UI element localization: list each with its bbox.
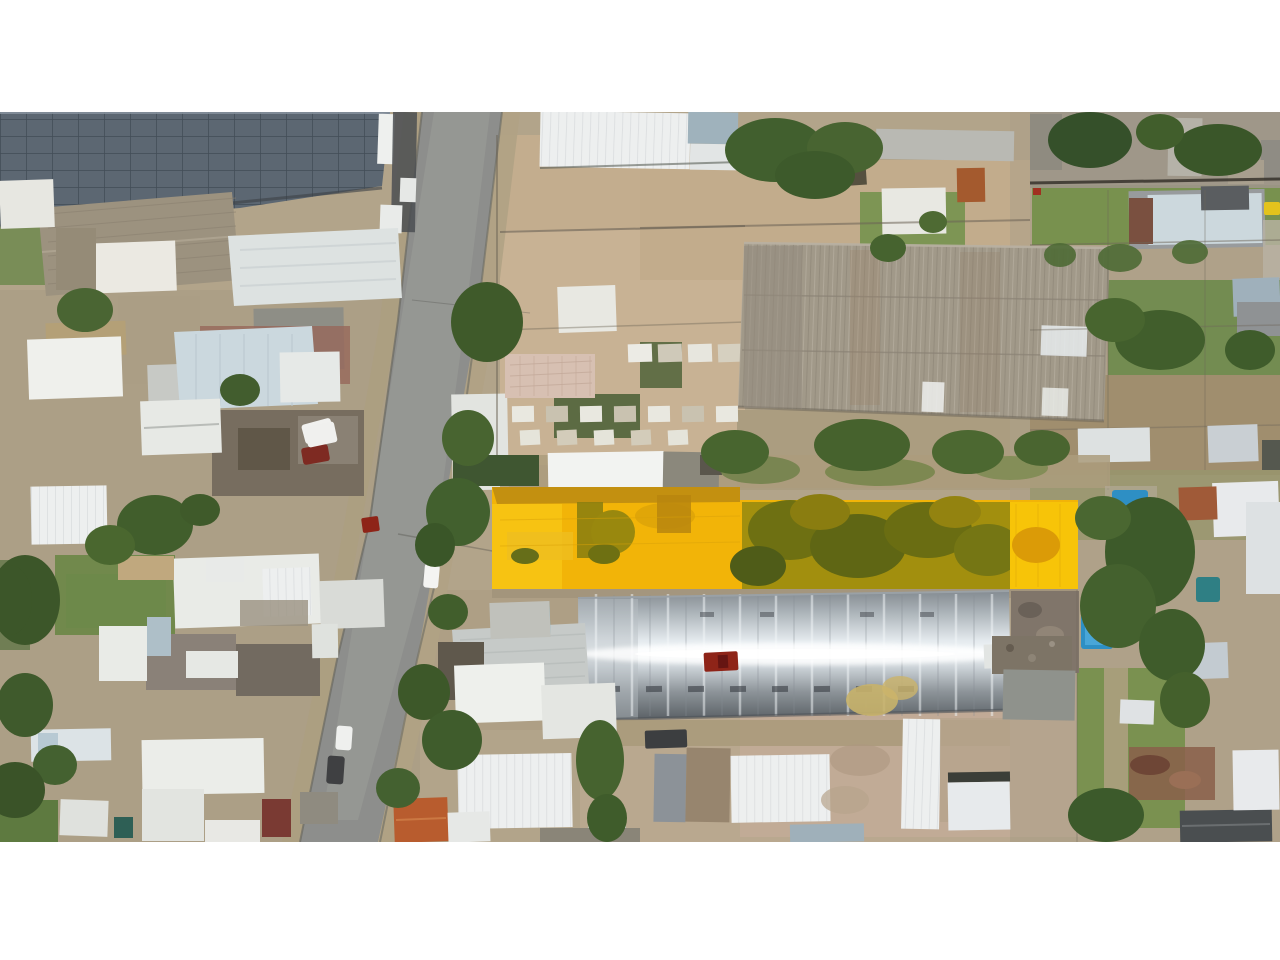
- photo-shape: [1232, 750, 1279, 811]
- photo-shape: [240, 600, 308, 626]
- crate: [682, 406, 704, 422]
- maroon-building: [262, 799, 291, 837]
- aerial-photo: [0, 0, 1280, 960]
- photo-shape: [830, 744, 890, 776]
- photo-shape: [1129, 198, 1153, 244]
- skylight: [921, 382, 944, 413]
- pool-teal: [1196, 577, 1220, 602]
- photo-shape: [300, 792, 338, 824]
- crate: [628, 344, 653, 363]
- photo-shape: [400, 178, 417, 203]
- tree: [415, 523, 455, 567]
- tree: [1174, 124, 1262, 176]
- photo-shape: [1262, 440, 1280, 470]
- photo-shape: [56, 228, 96, 290]
- photo-shape: [27, 336, 123, 399]
- tree: [1048, 112, 1132, 168]
- roof-vent: [730, 686, 746, 692]
- skylight: [1042, 388, 1069, 417]
- photo-shape: [238, 428, 290, 470]
- crate: [668, 429, 689, 445]
- photo-shape: [1003, 669, 1076, 720]
- photo-shape: [1012, 527, 1060, 563]
- tree: [576, 720, 624, 800]
- roof-vent: [814, 686, 830, 692]
- bush: [1044, 243, 1076, 267]
- photo-shape: [821, 786, 869, 814]
- teal-shed: [114, 817, 133, 838]
- roof-vent: [860, 612, 874, 617]
- photo-shape: [1246, 502, 1280, 594]
- photo-shape: [744, 246, 802, 408]
- photo-shape: [447, 811, 490, 842]
- tree: [220, 374, 260, 406]
- photo-shape: [206, 558, 244, 582]
- photo-shape: [653, 754, 686, 823]
- crate: [648, 406, 670, 422]
- tree: [1160, 672, 1210, 728]
- tree: [376, 768, 420, 808]
- photo-shape: [377, 114, 395, 165]
- crate: [658, 344, 683, 363]
- photo-shape: [280, 351, 341, 402]
- bush: [1098, 244, 1142, 272]
- dark-van: [645, 729, 688, 748]
- tree: [57, 288, 113, 332]
- tree: [587, 794, 627, 842]
- crate: [512, 406, 534, 422]
- roof-vent: [700, 612, 714, 617]
- photo-shape: [312, 624, 339, 658]
- tree: [1014, 430, 1070, 466]
- roof-vent: [772, 686, 788, 692]
- tree: [1075, 496, 1131, 540]
- crate: [614, 406, 636, 422]
- photo-shape: [948, 781, 1011, 830]
- photo-shape: [511, 548, 539, 564]
- photo-shape: [1263, 220, 1280, 278]
- tree: [451, 282, 523, 362]
- tree: [701, 430, 769, 474]
- rust-roof: [1178, 486, 1217, 520]
- photo-shape: [901, 719, 941, 830]
- photo-shape: [929, 496, 981, 528]
- white-warehouse-top: [540, 111, 691, 170]
- photo-shape: [1130, 755, 1170, 775]
- roof-vent: [646, 686, 662, 692]
- photo-shape: [186, 651, 238, 678]
- crate: [631, 429, 652, 445]
- tree: [932, 430, 1004, 474]
- photo-shape: [1028, 654, 1036, 662]
- roof-vent: [920, 612, 934, 617]
- bush: [870, 234, 906, 262]
- photo-shape: [588, 544, 620, 564]
- crate: [557, 429, 578, 445]
- photo-content: [0, 111, 1280, 845]
- photo-shape: [142, 738, 265, 795]
- tree: [1085, 298, 1145, 342]
- photo-shape: [236, 644, 320, 696]
- photo-shape: [1201, 186, 1249, 211]
- photo-shape: [730, 546, 786, 586]
- photo-shape: [882, 676, 918, 700]
- crate: [546, 406, 568, 422]
- bush: [1172, 240, 1208, 264]
- tree: [180, 494, 220, 526]
- photo-shape: [1033, 188, 1041, 195]
- photo-shape: [1018, 602, 1042, 618]
- tree: [85, 525, 135, 565]
- photo-shape: [657, 495, 691, 533]
- screenshot-canvas: [0, 0, 1280, 960]
- photo-shape: [1169, 771, 1201, 789]
- photo-shape: [205, 820, 260, 842]
- crate: [594, 429, 615, 445]
- photo-shape: [489, 601, 550, 639]
- tree: [422, 710, 482, 770]
- white-car-road: [423, 563, 440, 588]
- bush: [919, 211, 947, 233]
- tree: [814, 419, 910, 471]
- crate: [520, 429, 541, 445]
- photo-shape: [1006, 644, 1014, 652]
- tree: [775, 151, 855, 199]
- photo-shape: [1049, 641, 1055, 647]
- tree: [1139, 609, 1205, 681]
- photo-shape: [147, 617, 171, 656]
- photo-shape: [492, 487, 740, 504]
- crate: [580, 406, 602, 422]
- photo-shape: [91, 241, 177, 294]
- photo-shape: [1207, 424, 1258, 463]
- tree: [1068, 788, 1144, 842]
- photo-shape: [850, 250, 880, 405]
- photo-shape: [548, 451, 665, 489]
- tree: [398, 664, 450, 720]
- red-car-curb: [361, 516, 380, 533]
- photo-shape: [1120, 699, 1155, 724]
- photo-shape: [142, 789, 204, 841]
- photo-shape: [790, 823, 864, 842]
- tree: [428, 594, 468, 630]
- white-van-road: [335, 725, 353, 750]
- roof-vent: [688, 686, 704, 692]
- photo-shape: [718, 655, 729, 669]
- photo-shape: [685, 748, 730, 823]
- crate: [718, 344, 743, 363]
- tree: [1225, 330, 1275, 370]
- crate: [688, 344, 713, 363]
- dark-car-road: [326, 755, 345, 784]
- tree: [1136, 114, 1184, 150]
- roof-vent: [760, 612, 774, 617]
- crate: [716, 406, 738, 422]
- photo-shape: [960, 252, 1000, 412]
- photo-shape: [319, 579, 385, 629]
- photo-shape: [948, 771, 1010, 782]
- tree: [442, 410, 494, 466]
- photo-shape: [730, 754, 830, 823]
- photo-shape: [0, 179, 55, 229]
- photo-shape: [790, 494, 850, 530]
- photo-shape: [59, 799, 108, 837]
- rust-shed: [957, 168, 986, 202]
- photo-shape: [99, 626, 147, 681]
- photo-shape: [454, 662, 546, 723]
- photo-shape: [876, 129, 1015, 161]
- photo-shape: [635, 649, 955, 659]
- yellow-car: [1264, 202, 1280, 215]
